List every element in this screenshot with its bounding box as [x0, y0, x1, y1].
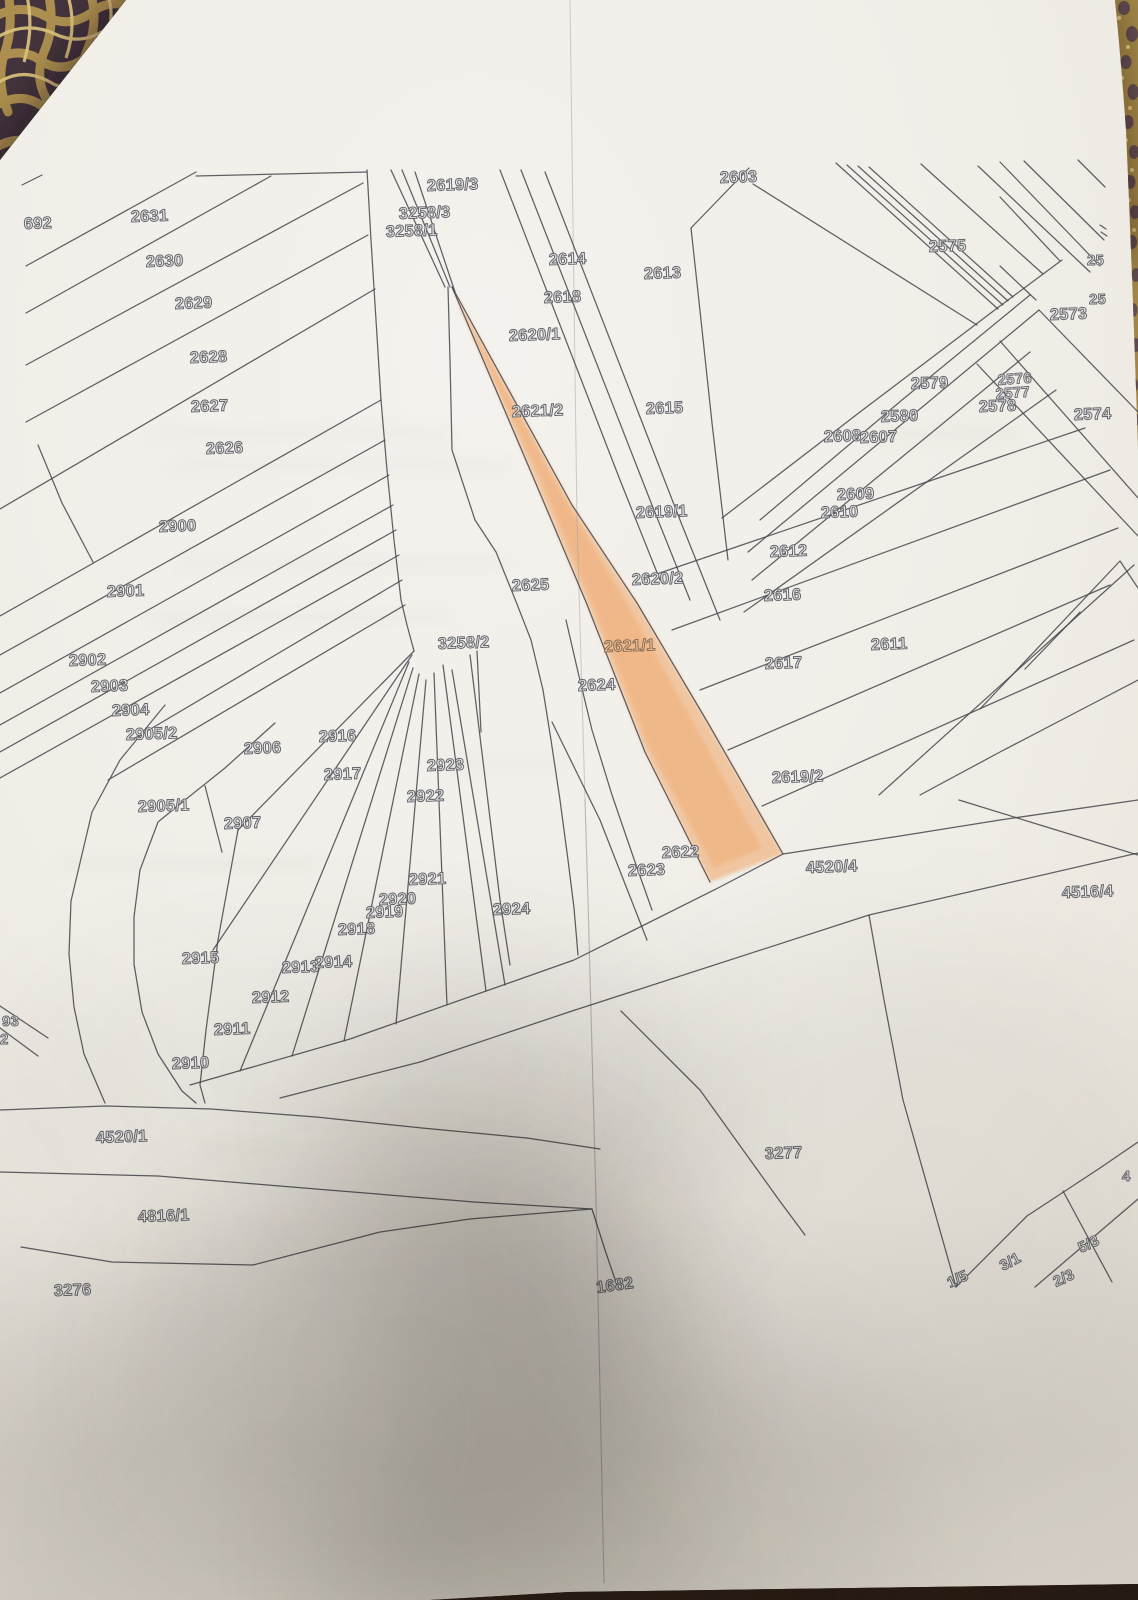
svg-text:2578: 2578	[979, 397, 1017, 416]
svg-text:2901: 2901	[107, 582, 145, 601]
svg-text:2620/2: 2620/2	[632, 569, 684, 589]
svg-text:2917: 2917	[324, 765, 362, 784]
svg-text:2608: 2608	[824, 427, 862, 446]
svg-text:2617: 2617	[765, 654, 803, 673]
svg-text:2906: 2906	[244, 739, 282, 758]
svg-text:2621/1: 2621/1	[604, 636, 656, 656]
svg-text:2627: 2627	[191, 397, 229, 416]
svg-text:2619/2: 2619/2	[772, 767, 824, 787]
svg-text:3258/1: 3258/1	[386, 221, 438, 241]
svg-text:2574: 2574	[1074, 405, 1113, 424]
svg-text:2612: 2612	[770, 542, 808, 561]
svg-text:2575: 2575	[929, 237, 967, 256]
svg-text:2629: 2629	[175, 294, 213, 313]
svg-text:2621/2: 2621/2	[512, 401, 564, 421]
svg-text:25: 25	[1089, 291, 1106, 308]
svg-text:25: 25	[1087, 252, 1104, 269]
svg-text:2573: 2573	[1050, 305, 1088, 324]
svg-text:2615: 2615	[646, 399, 684, 418]
svg-text:2611: 2611	[871, 635, 908, 654]
svg-text:2620/1: 2620/1	[509, 325, 561, 345]
svg-text:2614: 2614	[549, 250, 588, 269]
svg-text:2619/1: 2619/1	[636, 502, 688, 522]
svg-text:2616: 2616	[764, 586, 802, 605]
svg-text:2579: 2579	[911, 374, 949, 393]
svg-text:2905/2: 2905/2	[126, 724, 178, 744]
svg-text:3258/2: 3258/2	[438, 633, 490, 653]
svg-text:2904: 2904	[112, 701, 151, 720]
svg-text:2631: 2631	[131, 207, 169, 226]
svg-text:2923: 2923	[427, 756, 465, 775]
svg-text:2625: 2625	[512, 576, 550, 595]
svg-text:2624: 2624	[578, 676, 617, 695]
svg-text:2628: 2628	[190, 348, 228, 367]
svg-text:2626: 2626	[206, 439, 244, 458]
svg-text:2618: 2618	[544, 288, 582, 307]
svg-text:2916: 2916	[319, 727, 357, 746]
svg-text:2603: 2603	[720, 168, 758, 187]
svg-text:3258/3: 3258/3	[399, 203, 451, 223]
svg-text:2610: 2610	[821, 503, 859, 522]
svg-text:2903: 2903	[91, 677, 129, 696]
svg-text:2630: 2630	[146, 252, 184, 271]
svg-text:2902: 2902	[69, 651, 107, 670]
svg-text:692: 692	[24, 214, 53, 233]
svg-text:2613: 2613	[644, 264, 682, 283]
svg-text:2609: 2609	[837, 485, 875, 504]
svg-text:2607: 2607	[860, 428, 898, 447]
svg-text:2619/3: 2619/3	[427, 175, 479, 195]
svg-text:2580: 2580	[881, 407, 919, 426]
svg-text:2900: 2900	[159, 517, 197, 536]
